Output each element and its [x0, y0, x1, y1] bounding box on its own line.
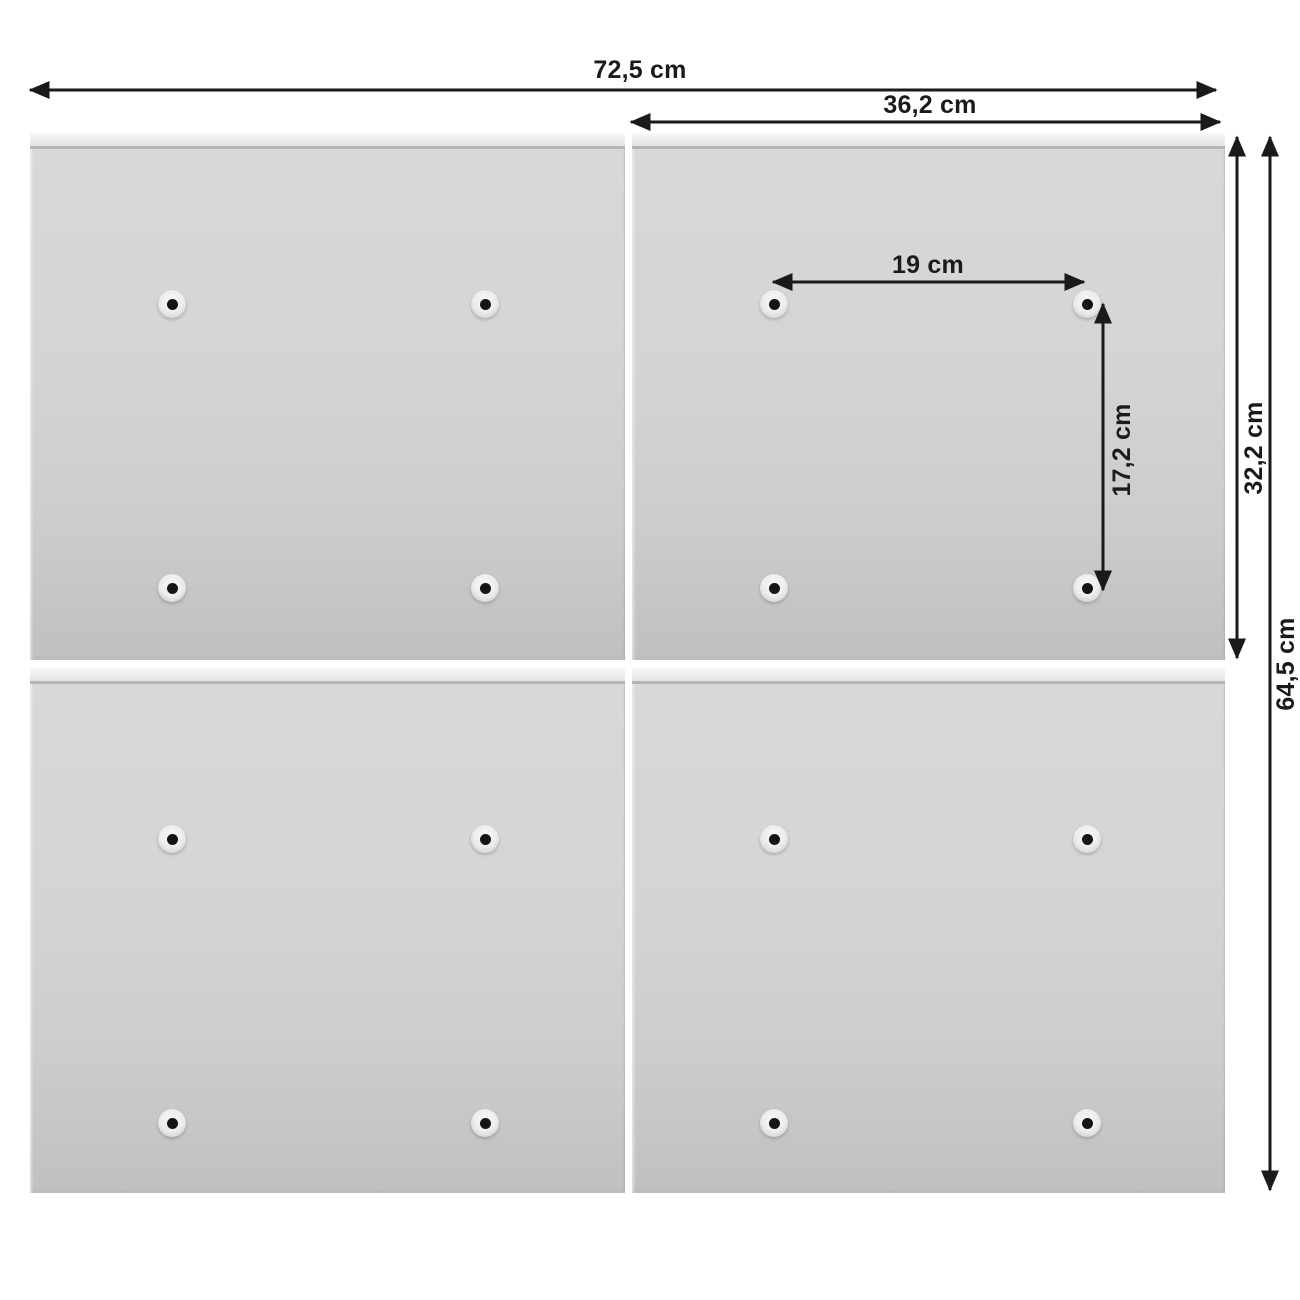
panel-top-right: [632, 133, 1225, 660]
hole-dot: [1082, 834, 1093, 845]
hole-dot: [769, 1118, 780, 1129]
hole-dimple: [471, 290, 499, 318]
hole-dimple: [1073, 1109, 1101, 1137]
hole-dimple: [760, 574, 788, 602]
panel-top-left-rail: [30, 133, 625, 149]
hole-dot: [167, 583, 178, 594]
panel-bottom-left-rail: [30, 668, 625, 684]
hole-dimple: [158, 825, 186, 853]
hole-dimple: [1073, 290, 1101, 318]
panel-top-right-rail: [632, 133, 1225, 149]
hole-dot: [769, 299, 780, 310]
panel-bottom-right: [632, 668, 1225, 1193]
dimension-label-hole-spacing-horizontal: 19 cm: [828, 251, 1028, 279]
hole-dot: [1082, 583, 1093, 594]
hole-dimple: [1073, 825, 1101, 853]
hole-dimple: [158, 574, 186, 602]
dimension-label-hole-spacing-vertical: 17,2 cm: [1108, 380, 1136, 520]
hole-dot: [769, 834, 780, 845]
hole-dimple: [1073, 574, 1101, 602]
hole-dimple: [471, 825, 499, 853]
hole-dot: [167, 299, 178, 310]
hole-dimple: [471, 574, 499, 602]
hole-dimple: [158, 1109, 186, 1137]
hole-dot: [769, 583, 780, 594]
hole-dimple: [760, 825, 788, 853]
hole-dot: [480, 299, 491, 310]
dimension-label-total-width: 72,5 cm: [540, 56, 740, 84]
hole-dot: [480, 1118, 491, 1129]
hole-dot: [480, 583, 491, 594]
panel-bottom-left: [30, 668, 625, 1193]
hole-dot: [1082, 1118, 1093, 1129]
panel-top-left: [30, 133, 625, 660]
hole-dimple: [158, 290, 186, 318]
product-dimension-diagram: 72,5 cm 36,2 cm 19 cm 17,2 cm 32,2 cm 64…: [0, 0, 1300, 1300]
dimension-label-panel-width: 36,2 cm: [830, 91, 1030, 119]
hole-dot: [480, 834, 491, 845]
hole-dimple: [471, 1109, 499, 1137]
hole-dot: [167, 1118, 178, 1129]
hole-dimple: [760, 290, 788, 318]
panel-bottom-right-rail: [632, 668, 1225, 684]
dimension-label-total-height: 64,5 cm: [1272, 594, 1300, 734]
dimension-label-panel-height: 32,2 cm: [1240, 378, 1268, 518]
hole-dot: [167, 834, 178, 845]
hole-dot: [1082, 299, 1093, 310]
hole-dimple: [760, 1109, 788, 1137]
